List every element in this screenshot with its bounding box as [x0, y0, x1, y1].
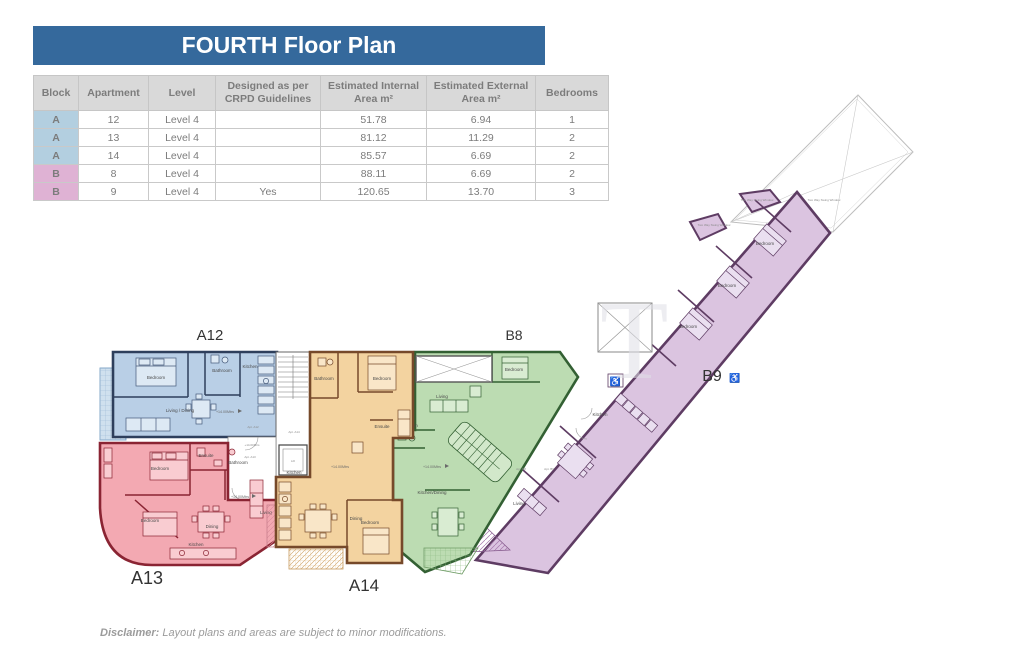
room-label: Kitchen	[286, 470, 302, 475]
room-label: Kitchen	[242, 364, 258, 369]
apt-door-label: Apt. B8	[516, 467, 526, 471]
apt-door-label: Apt. A13	[244, 455, 256, 459]
window-note: Two Way Swing Window	[741, 198, 775, 202]
apartment-label-a13: A13	[131, 568, 163, 588]
level-marker: +14.00Mtrs	[331, 465, 349, 469]
apt-door-label: Apt. A12	[247, 425, 259, 429]
room-label: Bedroom	[756, 241, 775, 246]
window-note: Two Way Swing Window	[808, 198, 842, 202]
room-label: Living	[436, 394, 448, 399]
room-label: Bedroom	[718, 283, 737, 288]
room-label: Bedroom	[151, 466, 170, 471]
room-label: Dining	[206, 524, 219, 529]
level-marker: +14.00Mtrs	[244, 443, 260, 447]
room-label: Bathroom	[228, 460, 248, 465]
room-label: Bedroom	[505, 367, 524, 372]
level-marker: +14.00Mtrs	[423, 465, 441, 469]
apartment-label-b9-group: B9 ♿	[702, 368, 740, 385]
level-marker: +14.00Mtrs	[231, 495, 249, 499]
room-label: Ensuite	[198, 453, 214, 458]
floor-plan-drawing: ♿ Bedroom Bedroom Bedroom Kitchen Living…	[0, 0, 1024, 662]
room-label: Living / Dining	[166, 408, 195, 413]
watermark: T	[600, 279, 668, 403]
level-marker: +14.00Mtrs	[216, 410, 234, 414]
disclaimer-text: Layout plans and areas are subject to mi…	[159, 627, 446, 639]
lift-label: Lift	[291, 459, 295, 463]
apt-door-label: Apt. A14	[288, 430, 300, 434]
accessibility-icon: ♿	[729, 372, 740, 383]
room-label: Bedroom	[361, 520, 380, 525]
room-label: Bedroom	[679, 324, 698, 329]
window-note: Two Way Swing Window	[698, 223, 732, 227]
apartment-label-b9: B9	[702, 368, 722, 385]
room-label: Kitchen	[592, 412, 608, 417]
room-label: Living	[513, 501, 525, 506]
apartment-label-b8: B8	[505, 327, 522, 343]
disclaimer-label: Disclaimer:	[100, 627, 159, 639]
room-label: Bathroom	[212, 368, 232, 373]
apartment-label-a14: A14	[349, 576, 379, 595]
disclaimer: Disclaimer: Layout plans and areas are s…	[100, 627, 447, 639]
room-label: Bedroom	[147, 375, 166, 380]
room-label: Bathroom	[314, 376, 334, 381]
room-label: Bedroom	[373, 376, 392, 381]
a14-balcony-hatch	[289, 549, 343, 569]
skylight-void	[416, 356, 492, 382]
room-label: Kitchen	[188, 542, 204, 547]
room-label: Bedroom	[141, 518, 160, 523]
terrace-outline	[731, 95, 913, 233]
room-label: Kitchen/Dining	[417, 490, 447, 495]
room-label: Ensuite	[374, 424, 390, 429]
floor-plan-page: FOURTH Floor Plan Block Apartment Level …	[0, 0, 1024, 662]
apt-door-label: Apt. B9	[544, 467, 554, 471]
apartment-label-a12: A12	[197, 327, 224, 344]
